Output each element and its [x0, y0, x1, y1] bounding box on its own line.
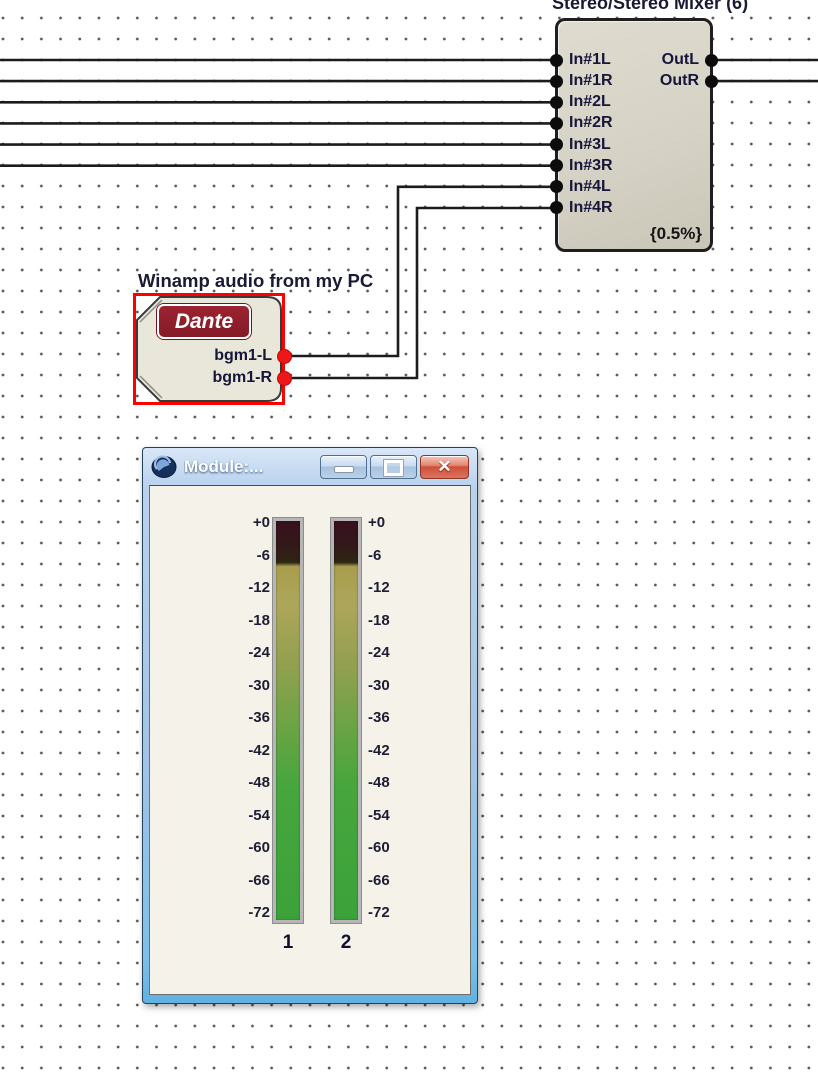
scale-tick--30: -30 [184, 677, 270, 695]
port-bgm1-L[interactable]: bgm1-L [214, 346, 291, 366]
mixer-title: Stereo/Stereo Mixer (6) [552, 0, 818, 14]
mixer-block[interactable]: In#1LIn#1RIn#2LIn#2RIn#3LIn#3RIn#4LIn#4R… [555, 18, 713, 252]
app-icon [151, 454, 177, 480]
scale-tick--66: -66 [184, 872, 270, 890]
scale-tick--6: -6 [368, 547, 454, 565]
port-In#3R[interactable]: In#3R [550, 156, 613, 176]
port-label: In#2R [569, 114, 613, 132]
close-icon: ✕ [437, 457, 451, 477]
scale-tick--72: -72 [368, 904, 454, 922]
window-controls: ✕ [320, 455, 469, 479]
port-In#4L[interactable]: In#4L [550, 177, 611, 197]
meter-bar-1 [273, 518, 303, 923]
port-label: In#1R [569, 72, 613, 90]
meter-panel: +0-6-12-18-24-30-36-42-48-54-60-66-72 +0… [149, 485, 471, 995]
scale-tick--18: -18 [184, 612, 270, 630]
scale-tick--36: -36 [368, 709, 454, 727]
scale-tick--18: -18 [368, 612, 454, 630]
port-label: OutL [662, 51, 699, 69]
port-dot-OutL[interactable] [705, 54, 718, 67]
scale-tick--60: -60 [184, 839, 270, 857]
scale-tick--12: -12 [184, 579, 270, 597]
maximize-button[interactable] [370, 455, 417, 479]
port-In#4R[interactable]: In#4R [550, 198, 613, 218]
dante-caption: Winamp audio from my PC [138, 270, 373, 292]
port-dot-In#3L[interactable] [550, 138, 563, 151]
port-dot-bgm1-L[interactable] [278, 350, 291, 363]
port-label: In#2L [569, 93, 611, 111]
meter-window[interactable]: Module:... ✕ +0-6-12-18-24-30-36-42-48-5… [142, 447, 478, 1004]
maximize-icon [384, 460, 403, 476]
scale-tick--42: -42 [184, 742, 270, 760]
meter-bar-2 [331, 518, 361, 923]
scale-tick--12: -12 [368, 579, 454, 597]
port-label: In#4L [569, 178, 611, 196]
port-OutL[interactable]: OutL [662, 50, 718, 70]
port-In#1R[interactable]: In#1R [550, 71, 613, 91]
scale-tick--72: -72 [184, 904, 270, 922]
design-canvas[interactable]: { "mixer": { "title": "Stereo/Stereo Mix… [0, 0, 818, 1081]
scale-tick--48: -48 [368, 774, 454, 792]
port-dot-In#2L[interactable] [550, 96, 563, 109]
scale-tick--42: -42 [368, 742, 454, 760]
scale-tick--60: -60 [368, 839, 454, 857]
port-label: In#3R [569, 157, 613, 175]
port-dot-In#4L[interactable] [550, 180, 563, 193]
scale-tick--48: -48 [184, 774, 270, 792]
port-OutR[interactable]: OutR [660, 71, 718, 91]
scale-tick--30: -30 [368, 677, 454, 695]
port-label: bgm1-L [214, 347, 272, 365]
meter-window-titlebar[interactable]: Module:... ✕ [149, 448, 471, 485]
scale-tick--24: -24 [368, 644, 454, 662]
dsp-load-label: {0.5%} [650, 224, 702, 244]
port-label: bgm1-R [212, 369, 272, 387]
minimize-button[interactable] [320, 455, 367, 479]
scale-tick--54: -54 [368, 807, 454, 825]
scale-tick--66: -66 [368, 872, 454, 890]
scale-tick--36: -36 [184, 709, 270, 727]
port-label: In#1L [569, 51, 611, 69]
scale-tick--24: -24 [184, 644, 270, 662]
meter-window-title: Module:... [184, 457, 313, 477]
port-In#1L[interactable]: In#1L [550, 50, 611, 70]
port-dot-bgm1-R[interactable] [278, 372, 291, 385]
minimize-icon [334, 466, 354, 473]
port-In#2R[interactable]: In#2R [550, 113, 613, 133]
port-label: In#3L [569, 136, 611, 154]
port-label: In#4R [569, 199, 613, 217]
dante-logo: Dante [157, 304, 251, 339]
channel-label-2: 2 [306, 932, 386, 954]
port-dot-In#3R[interactable] [550, 159, 563, 172]
scale-tick--54: -54 [184, 807, 270, 825]
close-button[interactable]: ✕ [420, 455, 469, 479]
port-In#2L[interactable]: In#2L [550, 92, 611, 112]
port-label: OutR [660, 72, 699, 90]
port-dot-In#1L[interactable] [550, 54, 563, 67]
dante-block[interactable]: Dante bgm1-Lbgm1-R [133, 293, 285, 405]
port-dot-In#2R[interactable] [550, 117, 563, 130]
port-bgm1-R[interactable]: bgm1-R [212, 368, 291, 388]
port-dot-In#4R[interactable] [550, 201, 563, 214]
scale-tick-+0: +0 [184, 514, 270, 532]
scale-tick-+0: +0 [368, 514, 454, 532]
wire-bgm1r-to-in4r[interactable] [285, 208, 556, 378]
port-In#3L[interactable]: In#3L [550, 135, 611, 155]
scale-tick--6: -6 [184, 547, 270, 565]
port-dot-OutR[interactable] [705, 75, 718, 88]
port-dot-In#1R[interactable] [550, 75, 563, 88]
